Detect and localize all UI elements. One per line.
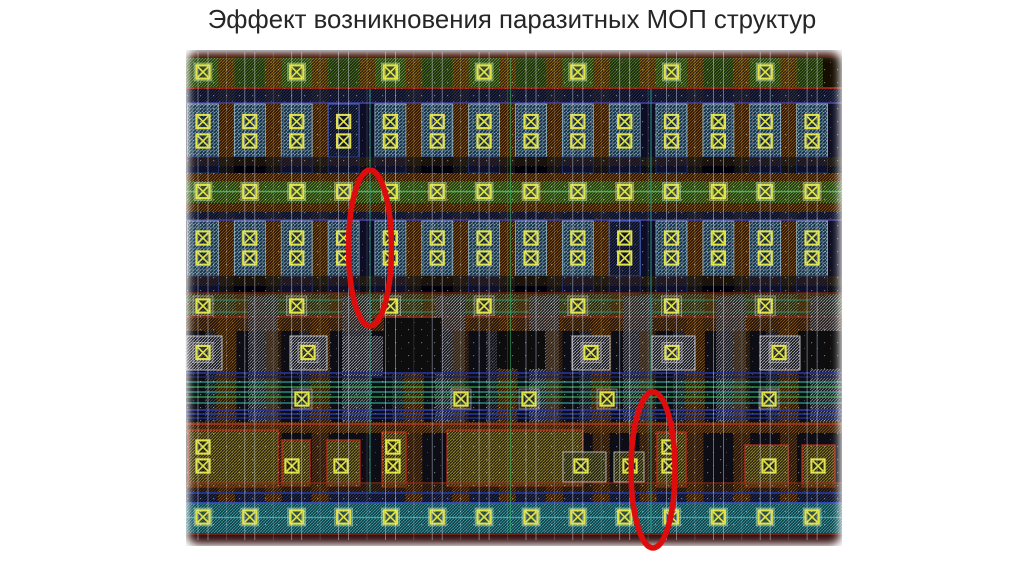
svg-text:Эффект возникновения паразитны: Эффект возникновения паразитных МОП стру… [208, 6, 816, 34]
